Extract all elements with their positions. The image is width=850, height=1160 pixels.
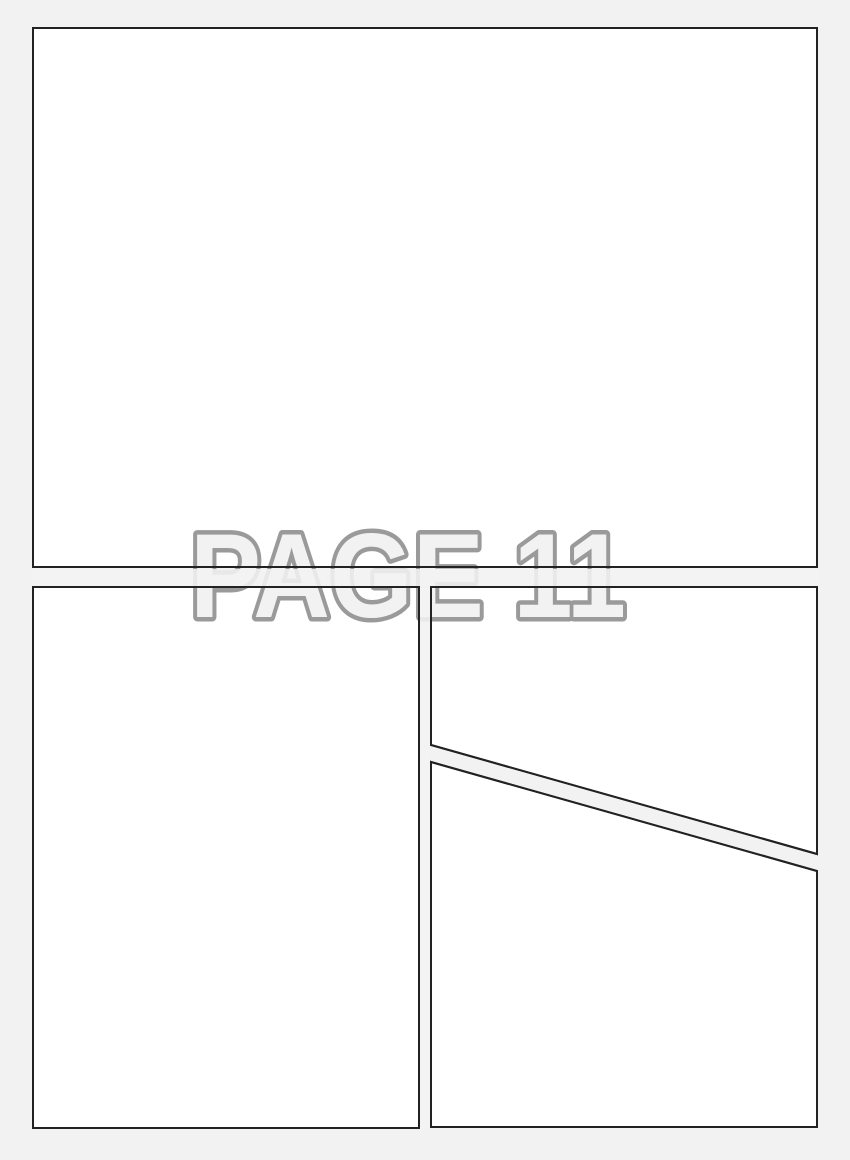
panel-bottom-left <box>33 587 419 1128</box>
page-canvas: PAGE 11 <box>0 0 850 1160</box>
comic-page-template: PAGE 11 <box>0 0 850 1160</box>
gutter-horizontal <box>32 569 818 586</box>
gutter-vertical <box>420 588 430 1128</box>
panel-top <box>33 28 817 567</box>
